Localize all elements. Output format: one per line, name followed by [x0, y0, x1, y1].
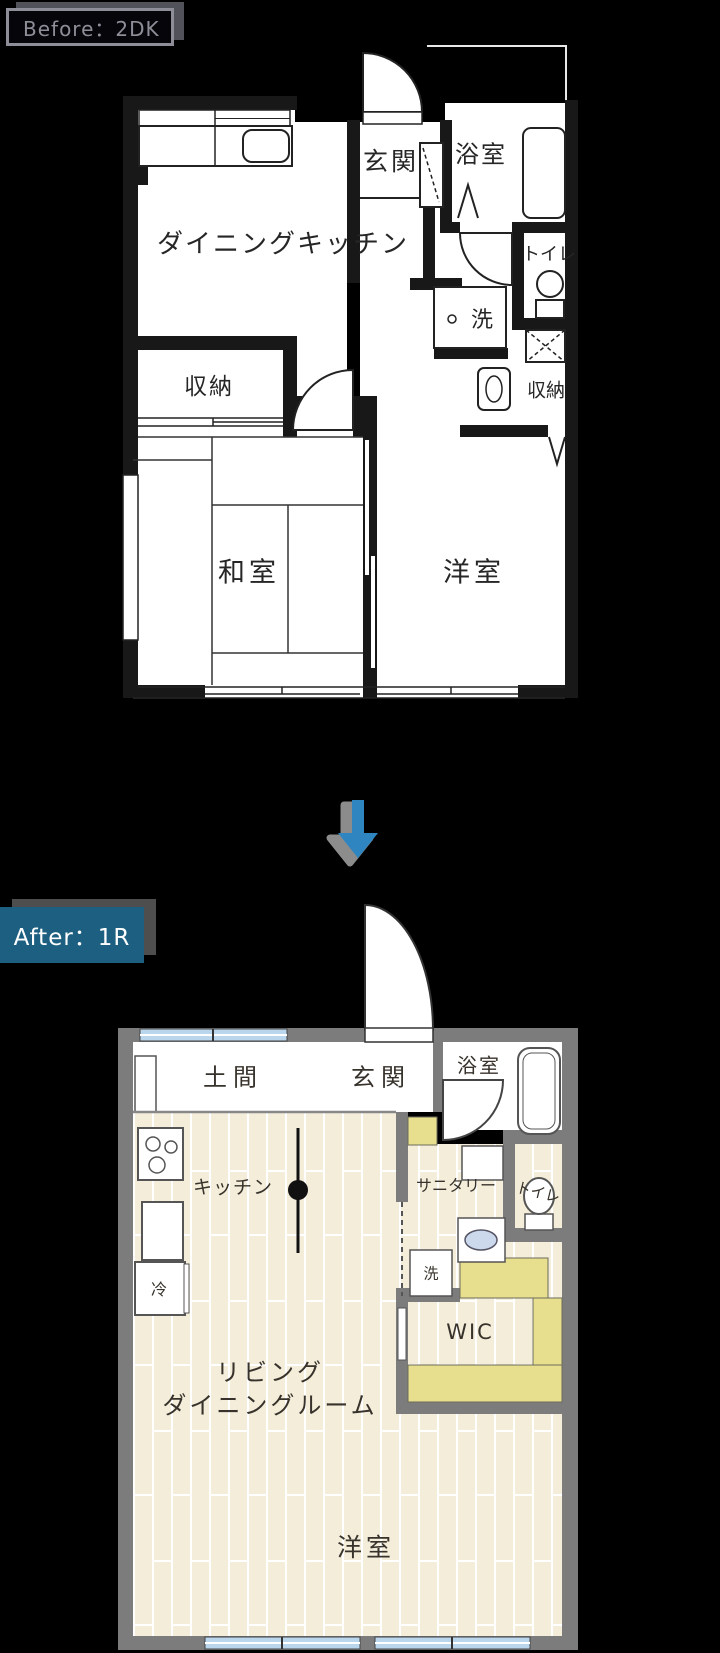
- label-before-bathroom: 浴室: [455, 135, 507, 170]
- after-bathtub: [518, 1048, 560, 1134]
- before-entry-threshold: [363, 112, 422, 124]
- burner: [149, 1157, 165, 1173]
- before-tag: Before：2DK: [6, 8, 174, 46]
- before-toilet-bowl: [537, 271, 563, 297]
- label-before-toilet: トイレ: [522, 240, 576, 266]
- label-after-entrance: 玄関: [351, 1058, 411, 1093]
- label-after-living-line1: リビング: [216, 1353, 324, 1388]
- label-before-laundry: 洗: [471, 302, 493, 334]
- label-before-dining-kitchen: ダイニングキッチン: [157, 224, 409, 261]
- fusuma-panel: [371, 556, 375, 668]
- before-tag-label: Before：2DK: [23, 13, 160, 42]
- burner: [165, 1141, 177, 1153]
- label-before-western-room: 洋室: [443, 551, 505, 590]
- washbasin-bowl: [465, 1230, 497, 1250]
- before-bathtub: [523, 128, 565, 218]
- label-before-japanese-room: 和室: [218, 551, 280, 590]
- exterior-outline: [427, 46, 566, 101]
- after-tag: After：1R: [0, 907, 144, 963]
- renovation-before-after-figure: Before：2DK After：1R ダイニングキッチン 玄関 浴室 トイレ …: [0, 0, 720, 1653]
- label-before-storage-left: 収納: [184, 367, 234, 401]
- label-after-sanitary: サニタリー: [416, 1172, 496, 1196]
- label-before-storage-right: 収納: [527, 376, 565, 403]
- label-after-kitchen: キッチン: [193, 1173, 273, 1200]
- label-after-western-room: 洋室: [337, 1528, 395, 1564]
- doma-step: [135, 1056, 156, 1112]
- label-after-laundry: 洗: [423, 1263, 438, 1284]
- after-entry-threshold: [365, 1028, 433, 1042]
- after-tag-label: After：1R: [14, 918, 131, 952]
- before-to-after-arrow: [330, 800, 378, 863]
- after-entry-door-arc: [365, 905, 433, 1030]
- label-after-bathroom: 浴室: [457, 1050, 501, 1079]
- wic-door-panel: [398, 1308, 406, 1360]
- after-bath-door-arc: [443, 1080, 503, 1140]
- label-after-wic: WIC: [446, 1320, 494, 1344]
- burner: [146, 1137, 160, 1151]
- before-west-window: [123, 475, 138, 640]
- label-before-entrance: 玄関: [363, 142, 419, 178]
- label-after-fridge: 冷: [151, 1276, 167, 1300]
- after-kitchen-sink: [142, 1202, 183, 1260]
- before-toilet-tank: [536, 300, 564, 318]
- after-toilet-tank: [525, 1214, 553, 1230]
- before-entry-door-arc: [363, 53, 422, 112]
- label-after-doma: 土間: [203, 1058, 263, 1093]
- label-after-living-line2: ダイニングルーム: [162, 1386, 377, 1421]
- pendant-dot: [288, 1180, 308, 1200]
- fusuma-panel: [365, 440, 369, 575]
- kitchen-sink: [243, 130, 289, 162]
